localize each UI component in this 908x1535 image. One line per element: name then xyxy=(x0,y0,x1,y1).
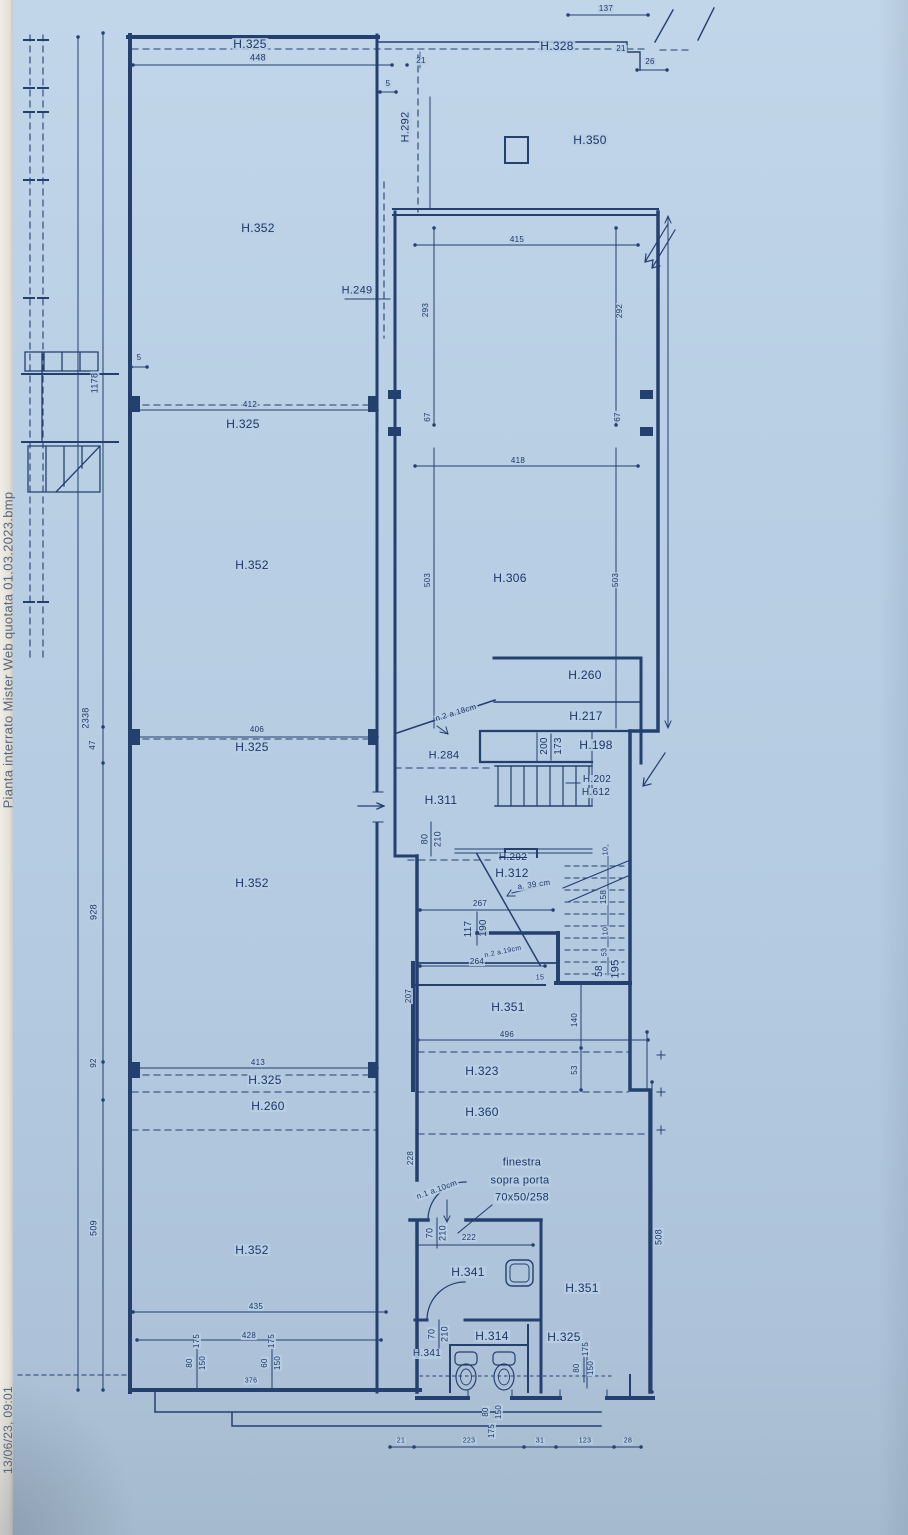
label-h-350-38: H.350 xyxy=(572,134,608,146)
label-h-217-50: H.217 xyxy=(568,710,604,722)
label-h-312-62: H.312 xyxy=(494,867,530,879)
label-150-29: 150 xyxy=(274,1355,282,1371)
label-2338-2: 2338 xyxy=(82,706,91,729)
label-508-83: 508 xyxy=(655,1228,664,1246)
label-h-352-14: H.352 xyxy=(234,559,270,571)
label-h-314-96: H.314 xyxy=(474,1330,510,1342)
label-150-26: 150 xyxy=(199,1355,207,1371)
label-h-341-97: H.341 xyxy=(412,1349,442,1359)
label-418-45: 418 xyxy=(510,457,526,465)
label-h-311-58: H.311 xyxy=(424,794,459,806)
label-175-104: 175 xyxy=(488,1423,496,1439)
label-210-90: 210 xyxy=(439,1224,448,1242)
label-928-5: 928 xyxy=(90,903,99,921)
label-finestra-note-1: finestra xyxy=(502,1158,542,1169)
label-200-51: 200 xyxy=(540,736,550,756)
label-h-323-81: H.323 xyxy=(464,1065,500,1077)
label-190-66: 190 xyxy=(479,918,489,938)
label-h-325-8: H.325 xyxy=(232,38,268,50)
label-h-202-56: H.202 xyxy=(582,775,612,785)
label-h-198-53: H.198 xyxy=(578,739,614,751)
label-h-328-32: H.328 xyxy=(539,40,575,52)
label-53-80: 53 xyxy=(571,1064,579,1076)
plan-labels-layer: Pianta interrato Mister Web quotata 01.0… xyxy=(0,0,908,1535)
label-53-72: 53 xyxy=(602,947,609,957)
label-5-11: 5 xyxy=(136,354,143,362)
label-h-325-16: H.325 xyxy=(234,741,270,753)
label-264-68: 264 xyxy=(469,958,485,966)
label-175-27: 175 xyxy=(268,1333,276,1349)
label-123-108: 123 xyxy=(578,1438,593,1445)
label-10-71: 10 xyxy=(603,926,610,936)
label-h-352-21: H.352 xyxy=(234,1244,270,1256)
label-92-6: 92 xyxy=(90,1057,98,1069)
label-h-284-55: H.284 xyxy=(428,751,461,762)
label-175-24: 175 xyxy=(193,1333,201,1349)
label-filename: Pianta interrato Mister Web quotata 01.0… xyxy=(2,491,15,810)
label-5-36: 5 xyxy=(385,80,392,88)
label-80-102: 80 xyxy=(482,1406,490,1418)
label-150-101: 150 xyxy=(587,1360,595,1376)
label-173-52: 173 xyxy=(554,736,564,756)
label-412-12: 412 xyxy=(242,401,258,409)
label-h-325-13: H.325 xyxy=(225,418,261,430)
label-175-99: 175 xyxy=(582,1341,590,1357)
label-80-100: 80 xyxy=(573,1362,581,1374)
label-67-43: 67 xyxy=(614,411,622,423)
label-223-106: 223 xyxy=(462,1438,477,1445)
label-21-33: 21 xyxy=(415,57,427,65)
label-70-94: 70 xyxy=(428,1328,437,1341)
label-413-18: 413 xyxy=(250,1059,266,1067)
label-28-109: 28 xyxy=(623,1438,633,1445)
label-210-95: 210 xyxy=(441,1325,450,1343)
label-n-2-a-18cm-54: n.2 a.18cm xyxy=(434,703,479,724)
label-h-249-44: H.249 xyxy=(341,286,374,297)
label-31-107: 31 xyxy=(535,1438,545,1445)
label-293-40: 293 xyxy=(422,302,430,318)
label-h-260-20: H.260 xyxy=(250,1100,286,1112)
label-finestra-note-3: 70x50/258 xyxy=(494,1193,550,1204)
label-21-105: 21 xyxy=(396,1438,406,1445)
label-140-79: 140 xyxy=(571,1012,579,1028)
label-h-292-61: H.292 xyxy=(498,853,528,863)
label-150-103: 150 xyxy=(495,1404,503,1420)
label-n-2-a-19cm-67: n.2 a.19cm xyxy=(483,944,523,959)
label-292-41: 292 xyxy=(616,303,624,319)
label-h-351-93: H.351 xyxy=(564,1282,600,1294)
label-60-28: 60 xyxy=(261,1357,269,1369)
label-h-351-77: H.351 xyxy=(490,1001,526,1013)
label-15-75: 15 xyxy=(535,975,545,982)
label-428-23: 428 xyxy=(241,1332,257,1340)
label-h-341-92: H.341 xyxy=(450,1266,486,1278)
label-h-352-17: H.352 xyxy=(234,877,270,889)
label-210-60: 210 xyxy=(434,830,443,848)
label-21-34: 21 xyxy=(615,45,627,53)
label-67-42: 67 xyxy=(424,411,432,423)
label-376-30: 376 xyxy=(244,1378,259,1385)
label-n-1-a-10cm-88: n.1 a.10cm xyxy=(415,1179,460,1202)
label-195-74: 195 xyxy=(611,958,622,979)
label-h-352-10: H.352 xyxy=(240,222,276,234)
label-h-292-37: H.292 xyxy=(401,111,412,144)
label-267-64: 267 xyxy=(472,900,488,908)
label-496-78: 496 xyxy=(499,1031,515,1039)
label-509-7: 509 xyxy=(90,1219,99,1237)
label-80-25: 80 xyxy=(186,1357,194,1369)
label-80-59: 80 xyxy=(421,833,430,846)
label-timestamp: 13/06/23, 09:01 xyxy=(2,1385,14,1475)
scanned-floor-plan-page: Pianta interrato Mister Web quotata 01.0… xyxy=(0,0,908,1535)
label-h-612-57: H.612 xyxy=(581,788,611,798)
label-1178-3: 1178 xyxy=(91,372,100,395)
label-158-70: 158 xyxy=(600,889,608,905)
label-137-31: 137 xyxy=(598,5,614,13)
label-h-325-19: H.325 xyxy=(247,1074,283,1086)
label-228-84: 228 xyxy=(407,1150,415,1166)
label-415-39: 415 xyxy=(509,236,525,244)
label-406-15: 406 xyxy=(249,726,265,734)
label-435-22: 435 xyxy=(248,1303,264,1311)
label-finestra-note-2: sopra porta xyxy=(490,1176,551,1187)
label-503-47: 503 xyxy=(612,572,620,588)
label-503-46: 503 xyxy=(424,572,432,588)
label-117-65: 117 xyxy=(464,920,474,939)
label-47-4: 47 xyxy=(89,739,97,751)
label-h-325-98: H.325 xyxy=(546,1331,582,1343)
label-26-35: 26 xyxy=(644,58,656,66)
label-222-91: 222 xyxy=(461,1234,477,1242)
label-a-39-cm-63: a. 39 cm xyxy=(516,879,552,892)
label-58-73: 58 xyxy=(595,964,605,978)
label-h-306-48: H.306 xyxy=(492,572,528,584)
label-h-260-49: H.260 xyxy=(567,669,603,681)
label-70-89: 70 xyxy=(426,1227,435,1240)
label-207-76: 207 xyxy=(405,988,413,1004)
label-448-9: 448 xyxy=(249,54,267,63)
label-h-360-82: H.360 xyxy=(464,1106,500,1118)
label-10-69: 10 xyxy=(603,846,610,856)
